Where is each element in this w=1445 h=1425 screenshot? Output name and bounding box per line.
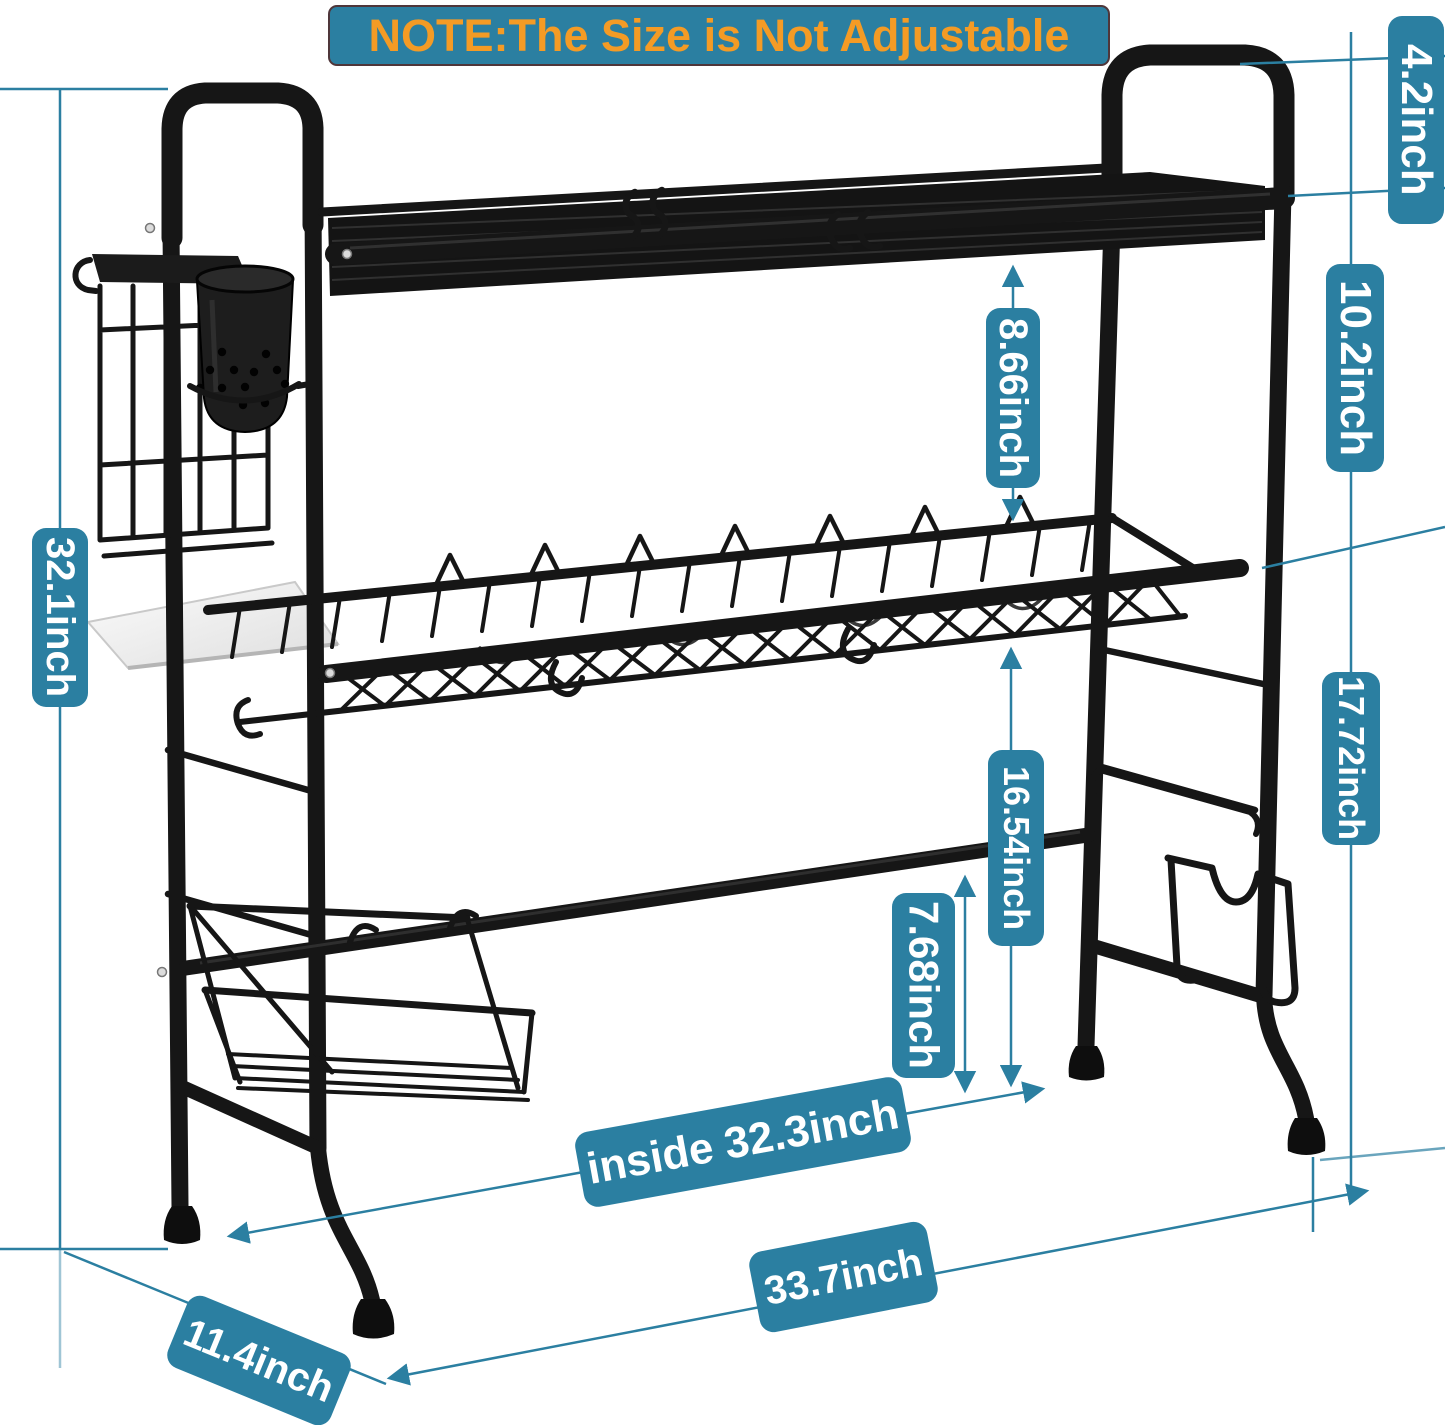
size-note-text: NOTE:The Size is Not Adjustable bbox=[369, 10, 1070, 62]
middle-dish-basket bbox=[208, 497, 1240, 736]
dim-value: 17.72inch bbox=[1333, 676, 1369, 840]
dim-value: 16.54inch bbox=[998, 766, 1034, 930]
utensil-holder-cup bbox=[190, 266, 315, 432]
dim-value: 33.7inch bbox=[761, 1242, 926, 1312]
dim-label-middle-shelf-clearance: 16.54inch bbox=[988, 750, 1044, 946]
dim-label-shelf-gap: 8.66inch bbox=[986, 308, 1040, 488]
dim-value: 32.1inch bbox=[40, 537, 80, 697]
top-shelf bbox=[322, 168, 1284, 296]
product-dimension-diagram: NOTE:The Size is Not Adjustable 4.2inch … bbox=[0, 0, 1445, 1425]
dim-value: 4.2inch bbox=[1394, 44, 1438, 196]
drain-tray bbox=[88, 582, 338, 668]
size-note-banner: NOTE:The Size is Not Adjustable bbox=[328, 5, 1110, 66]
dim-label-handle-height: 4.2inch bbox=[1388, 16, 1444, 224]
dim-label-total-height: 32.1inch bbox=[32, 528, 88, 707]
diagram-canvas bbox=[0, 0, 1445, 1425]
rubber-feet bbox=[164, 1046, 1326, 1339]
dim-value: 10.2inch bbox=[1333, 280, 1377, 456]
dim-label-middle-to-counter: 17.72inch bbox=[1322, 672, 1380, 845]
dim-value: 8.66inch bbox=[993, 318, 1033, 478]
dim-label-crossbar-clearance: 7.68inch bbox=[892, 893, 955, 1078]
dim-label-top-to-middle-shelf: 10.2inch bbox=[1326, 264, 1384, 472]
dim-value: 7.68inch bbox=[903, 901, 945, 1069]
